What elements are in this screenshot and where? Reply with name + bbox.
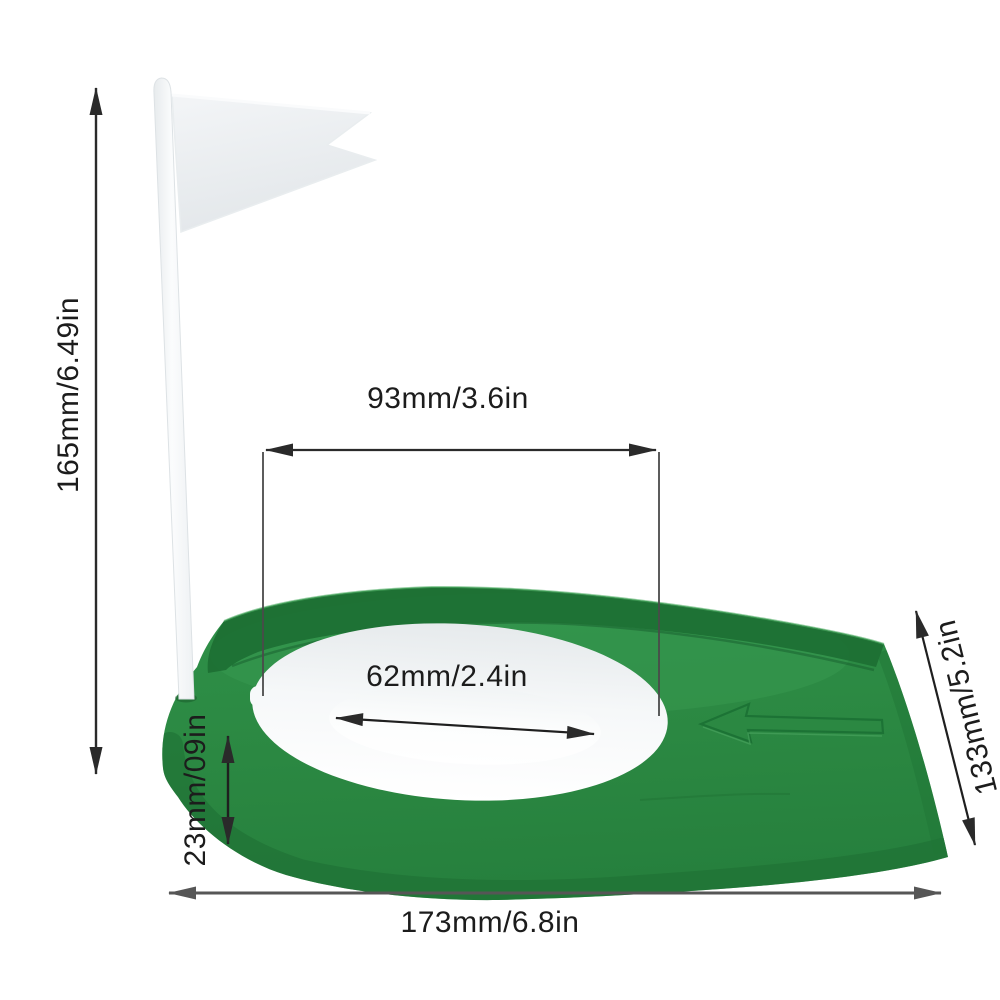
flag-pennant xyxy=(172,95,375,232)
product-illustration xyxy=(0,0,1000,1000)
product-dimension-diagram: 165mm/6.49in 93mm/3.6in 62mm/2.4in 23mm/… xyxy=(0,0,1000,1000)
dimension-label-height: 165mm/6.49in xyxy=(54,297,84,493)
dimension-label-edge-thickness: 23mm/09in xyxy=(181,714,211,867)
dimension-label-hole-diameter: 62mm/2.4in xyxy=(366,662,528,692)
dimension-label-top-width: 93mm/3.6in xyxy=(367,384,529,414)
dimension-label-base-width: 173mm/6.8in xyxy=(401,908,580,938)
ring-alignment-nub xyxy=(250,686,270,707)
